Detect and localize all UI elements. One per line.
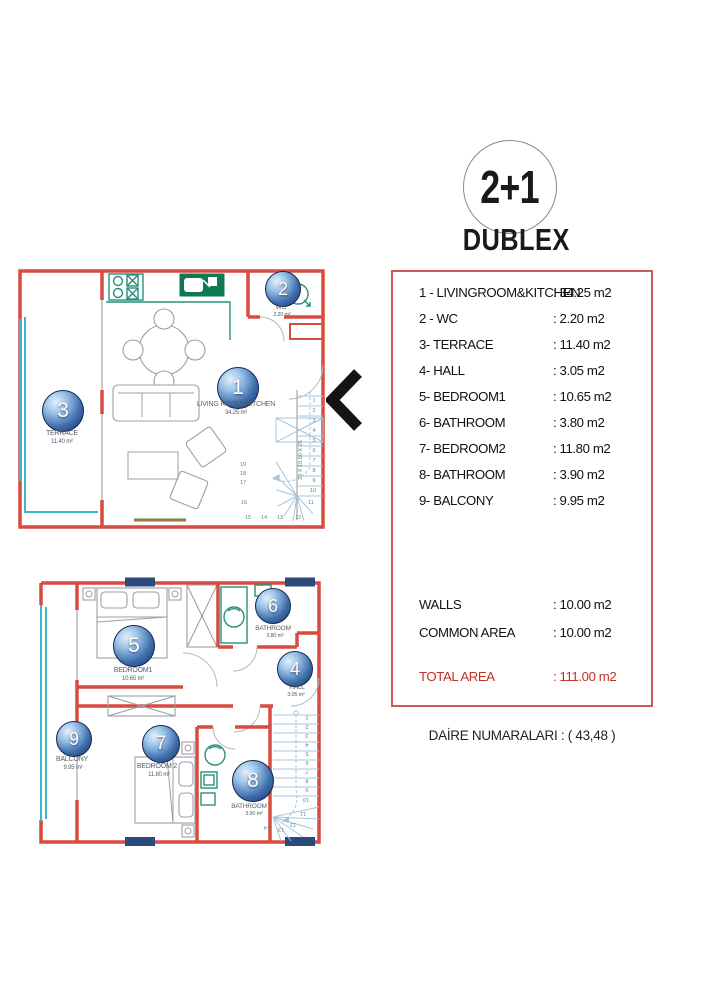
table-row: 4- HALL: 3.05 m2 [393,358,651,384]
stair-step-number: 3 [305,732,308,738]
stair-step-number: 14 [261,515,267,521]
stair-step-number: 9 [312,478,315,484]
room-label: BATHROOM [231,803,266,810]
pillow [133,592,159,608]
stair-step-number: 15 [245,515,251,521]
stair-walkline [282,715,297,821]
armchair [169,470,208,509]
table-row: 2 - WC: 2.20 m2 [393,306,651,332]
stair-step-number: 5 [312,438,315,444]
bedroom1-door-arc [183,653,217,687]
chevron-left-icon [326,368,366,432]
stair-step-number: 10 [303,796,309,802]
room-area-label: 3.90 m² [245,811,262,817]
stair-step-number: 16 [241,500,247,506]
stair-step-number: 12 [290,821,296,827]
total-area-row: TOTAL AREA : 111.00 m2 [393,662,651,690]
stair-step-number: 13 [277,515,283,521]
closet-cross [187,585,217,647]
table-row: 6- BATHROOM: 3.80 m2 [393,409,651,435]
stair-step-number: 5 [305,750,308,756]
room-label: BEDROOM 2 [137,763,177,770]
sheet-title: DUBLEX [416,222,616,258]
stair-step-number: 9 [305,786,308,792]
stair-step-number: 7 [305,768,308,774]
room-bubble-bathroom8: 8 [232,760,274,802]
room-bubble-balcony: 9 [56,721,92,757]
room-label: HALL [289,684,304,691]
apartment-numbers-note: DAİRE NUMARALARI : ( 43,48 ) [391,728,653,743]
stair-step-number: 14 [264,824,270,830]
room-area-label: 10.65 m² [122,676,144,682]
room-area-label: 11.40 m² [51,439,73,445]
area-table: 1 - LIVINGROOM&KITCHEN: 34.25 m2 2 - WC:… [391,270,653,707]
stair-step-number: 11 [300,810,306,816]
duplex-plan-sheet: 2+1 DUBLEX 1 - LIVINGROOM&KITCHEN: 34.25… [0,0,707,1000]
armchair [185,426,227,468]
room-area-label: 34.25 m² [225,410,247,416]
wc-door-arc [260,317,284,341]
room-label: TERRACE [46,430,78,437]
pillow [179,793,193,817]
stair-step-number: 4 [305,741,308,747]
column [285,578,315,587]
stair-step-number: 3 [312,418,315,424]
nightstand [182,825,194,837]
toilet-icon [201,793,215,805]
room-bubble-bedroom2: 7 [142,725,180,763]
room-bubble-wc: 2 [265,271,301,307]
room-bubble-bedroom1: 5 [113,625,155,667]
entry-door-arc [289,365,323,399]
stair-step-number: 6 [305,759,308,765]
stair-void-cross [276,418,323,442]
stair-dimension-note: 20 X 18.50 X 25 [298,440,304,479]
stair-step-number: 19 [240,462,246,468]
bathroom6-door-arc [233,647,257,671]
table-row: 8- BATHROOM: 3.90 m2 [393,461,651,487]
stair-step-number: 10 [310,488,316,494]
stair-step-number: 2 [312,408,315,414]
table-row: 3- TERRACE: 11.40 m2 [393,332,651,358]
stair-step-number: 4 [312,428,315,434]
dining-chair [154,309,174,329]
stair-step-number: 18 [240,471,246,477]
upper-floor-plan: 1 LIVING ROOM&KITCHEN 34.25 m² 2 WC 2.20… [14,262,330,530]
room-bubble-hall: 4 [277,651,313,687]
dining-table [139,325,189,375]
unit-type-label: 2+1 [481,160,540,214]
area-table-extras: WALLS: 10.00 m2 COMMON AREA: 10.00 m2 [393,590,651,646]
washing-machine-icon [205,745,225,765]
walls-row: WALLS: 10.00 m2 [393,590,651,618]
stair-step-number: 1 [312,398,315,404]
table-row: 1 - LIVINGROOM&KITCHEN: 34.25 m2 [393,280,651,306]
room-label: WC [276,304,286,311]
stair-step-number: 11 [308,500,314,506]
dining-chair [123,340,143,360]
table-row: 5- BEDROOM1: 10.65 m2 [393,384,651,410]
stair-step-number: 2 [305,723,308,729]
washing-machine-icon [224,607,244,627]
stair-step-number: 13 [278,826,284,832]
nightstand [182,742,194,754]
shaft [290,324,323,339]
room-area-label: 11.80 m² [148,772,170,778]
stair-winders [276,462,313,521]
rug [128,452,178,479]
common-area-row: COMMON AREA: 10.00 m2 [393,618,651,646]
area-table-rooms: 1 - LIVINGROOM&KITCHEN: 34.25 m2 2 - WC:… [393,280,651,513]
nightstand [169,588,181,600]
pillow [179,762,193,786]
room-label: BATHROOM [255,625,290,632]
dining-chair [185,340,205,360]
hall-notch [297,633,319,647]
column [125,837,155,846]
stair-step-number: 7 [312,458,315,464]
room-area-label: 3.05 m² [287,692,304,698]
room-area-label: 3.80 m² [266,633,283,639]
table-row: 9- BALCONY: 9.95 m2 [393,487,651,513]
room-bubble-terrace: 3 [42,390,84,432]
sofa [113,385,199,421]
nightstand [83,588,95,600]
room-area-label: 9.95 m² [64,765,83,771]
room-bubble-bathroom6: 6 [255,588,291,624]
stair-step-number: 8 [305,777,308,783]
stair-step-number: 17 [240,480,246,486]
lower-floor-plan: 4 HALL 3.05 m² 5 BEDROOM1 10.65 m² 6 BAT… [35,575,325,850]
stair-step-number: 6 [312,448,315,454]
room-area-label: 2.20 m² [273,312,290,318]
room-label: BEDROOM1 [114,667,152,674]
stair-step-number: 8 [312,468,315,474]
room-label: BALCONY [56,756,88,763]
room-label: LIVING ROOM&KITCHEN [197,401,275,408]
stair-step-number: 1 [305,714,308,720]
walkline-arrow [272,474,280,481]
column [125,578,155,587]
table-row: 7- BEDROOM2: 11.80 m2 [393,435,651,461]
pillow [101,592,127,608]
washing-machine-door [228,609,240,611]
stair-step-number: 12 [295,515,301,521]
walkline-start [294,711,298,715]
wc-basin-arrow [304,300,310,306]
unit-type-badge: 2+1 [463,140,557,234]
stair-walkline [272,392,310,481]
